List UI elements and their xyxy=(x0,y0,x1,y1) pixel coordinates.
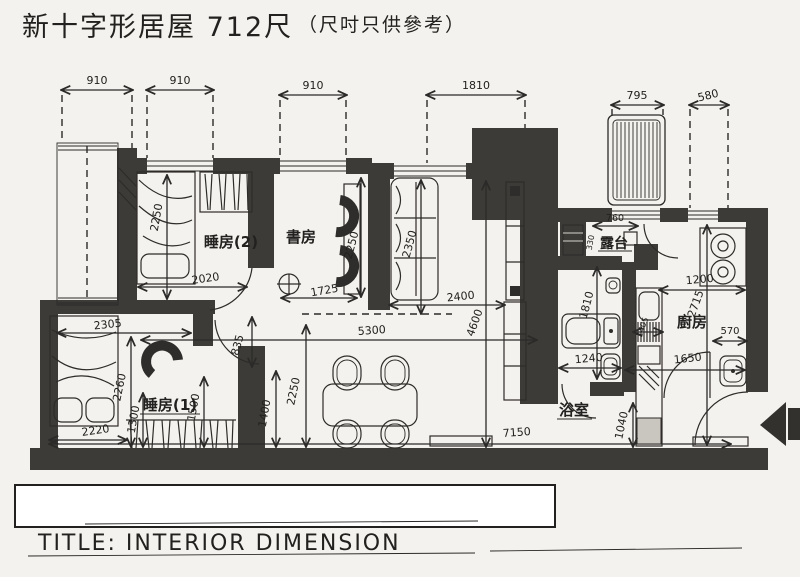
dim-2220: 2220 xyxy=(81,422,111,439)
dim-bed2-2250: 2250 xyxy=(148,202,166,232)
dim-1810: 1810 xyxy=(577,290,597,320)
dim-4600: 4600 xyxy=(464,307,486,338)
study-chair-1 xyxy=(336,200,354,232)
page-subtitle: （尺吋只供參考） xyxy=(298,14,466,36)
toilet xyxy=(601,354,620,379)
study-group: 書房 2250 1725 xyxy=(277,179,362,299)
bedroom1-group: 睡房(1) 2305 2220 2260 1300 1500 xyxy=(50,316,259,448)
dim-5300: 5300 xyxy=(357,323,386,338)
page-title: 新十字形居屋 712尺 xyxy=(22,12,293,43)
dim-330: 330 xyxy=(585,234,597,251)
bedroom2-group: 睡房(2) 2020 2250 xyxy=(119,168,258,310)
study-label: 書房 xyxy=(286,228,316,246)
title-block-label: TITLE: INTERIOR DIMENSION xyxy=(37,531,401,556)
dim-2020: 2020 xyxy=(191,270,221,287)
bed1-chair xyxy=(146,346,178,374)
dim-7150: 7150 xyxy=(502,425,531,440)
washing-machine xyxy=(560,222,586,258)
dim-2400: 2400 xyxy=(446,289,475,305)
louvre-unit xyxy=(608,115,665,205)
floor-trap-symbol xyxy=(277,274,301,294)
bedroom2-label: 睡房(2) xyxy=(204,233,258,251)
dim-910-a: 910 xyxy=(87,74,108,87)
bathroom-group: 浴室 1810 1240 xyxy=(557,268,620,419)
dim-580: 580 xyxy=(696,87,720,105)
balcony-label: 露台 xyxy=(600,235,628,252)
kitchen-sink xyxy=(720,356,746,386)
dining-chairs xyxy=(333,356,409,448)
floor-plan-drawing: 新十字形居屋 712尺 （尺吋只供參考） xyxy=(0,0,800,577)
dim-1300: 1300 xyxy=(125,404,143,434)
dim-1200: 1200 xyxy=(685,272,714,287)
dim-795: 795 xyxy=(627,89,648,102)
bed2-bed xyxy=(137,172,195,284)
top-dimensions: 910 910 910 1810 795 580 xyxy=(62,74,728,105)
bathtub xyxy=(562,314,620,348)
title-block: TITLE: INTERIOR DIMENSION xyxy=(15,485,742,556)
dim-910-b: 910 xyxy=(170,74,191,87)
dim-570: 570 xyxy=(720,326,739,337)
dining-table xyxy=(323,384,417,426)
dim-hall-2250: 2250 xyxy=(284,376,303,406)
dim-1240: 1240 xyxy=(574,351,603,366)
kitchen-counter xyxy=(636,288,662,446)
header: 新十字形居屋 712尺 （尺吋只供參考） xyxy=(22,12,466,43)
bed2-pillow xyxy=(141,254,189,278)
dim-760: 760 xyxy=(606,213,624,224)
dim-1725: 1725 xyxy=(309,282,339,300)
dim-1405: 1405 xyxy=(635,316,650,338)
bathroom-label: 浴室 xyxy=(559,401,589,419)
wash-basin xyxy=(606,278,620,293)
bed2-wardrobe xyxy=(200,172,252,212)
dim-1810: 1810 xyxy=(462,79,490,92)
dim-1040: 1040 xyxy=(612,410,631,440)
dim-1650: 1650 xyxy=(673,351,702,367)
dim-2260: 2260 xyxy=(110,372,129,402)
floor-plan-page: 新十字形居屋 712尺 （尺吋只供參考） xyxy=(0,0,800,577)
dim-910-c: 910 xyxy=(303,79,324,92)
